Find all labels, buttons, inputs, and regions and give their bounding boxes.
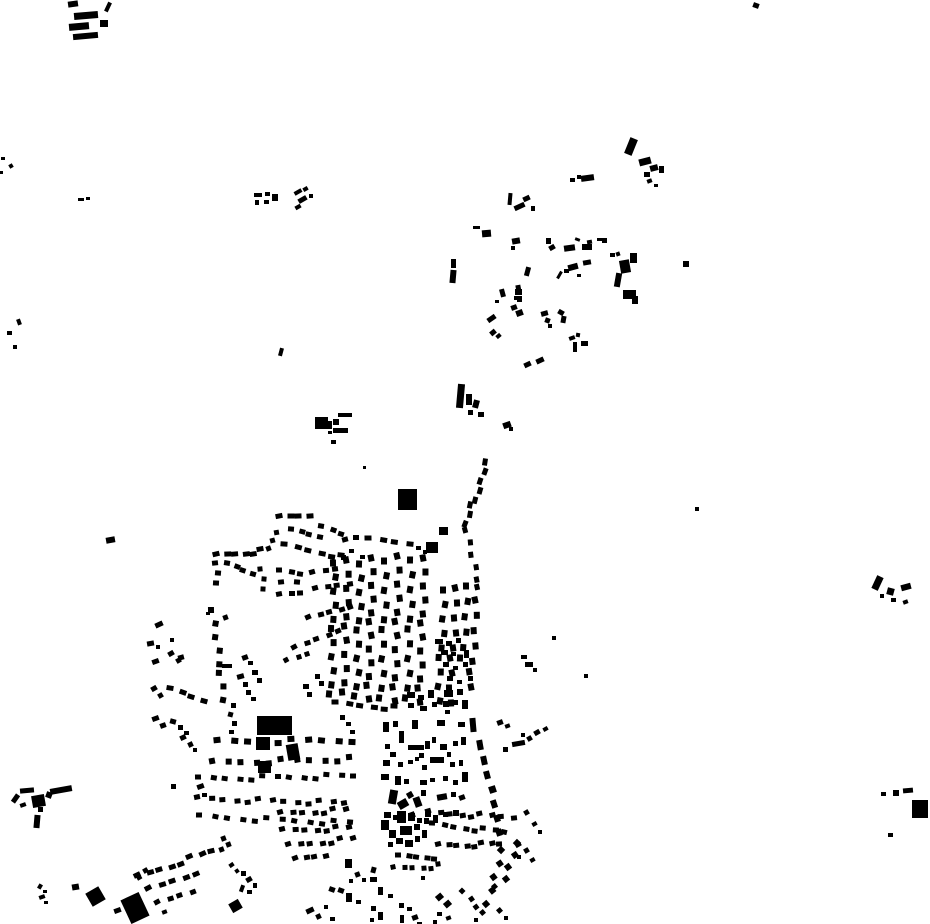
building-footprint bbox=[161, 909, 167, 914]
building-footprint bbox=[389, 683, 396, 691]
building-footprint bbox=[422, 596, 428, 603]
building-footprint bbox=[318, 737, 326, 744]
building-footprint bbox=[120, 892, 149, 924]
building-footprint bbox=[509, 427, 513, 431]
building-footprint bbox=[272, 194, 278, 201]
building-footprint bbox=[510, 304, 517, 311]
building-footprint bbox=[459, 813, 466, 819]
building-footprint bbox=[328, 840, 335, 846]
building-footprint bbox=[355, 669, 362, 677]
building-footprint bbox=[446, 654, 453, 662]
building-footprint bbox=[473, 226, 480, 229]
building-footprint bbox=[504, 916, 508, 920]
building-footprint bbox=[417, 698, 424, 706]
building-footprint bbox=[275, 740, 282, 746]
building-footprint bbox=[278, 579, 284, 585]
building-footprint bbox=[381, 641, 387, 648]
building-footprint bbox=[467, 511, 473, 519]
building-footprint bbox=[426, 542, 438, 553]
building-footprint bbox=[291, 855, 298, 862]
building-footprint bbox=[228, 899, 243, 913]
building-footprint bbox=[294, 756, 301, 763]
building-footprint bbox=[297, 571, 304, 577]
building-footprint bbox=[220, 835, 226, 841]
building-footprint bbox=[486, 314, 496, 323]
building-footprint bbox=[443, 899, 452, 908]
building-footprint bbox=[445, 915, 451, 920]
building-footprint bbox=[179, 734, 187, 741]
building-footprint bbox=[219, 696, 226, 703]
building-footprint bbox=[254, 193, 262, 197]
building-footprint bbox=[438, 668, 444, 675]
building-footprint bbox=[422, 569, 428, 576]
building-footprint bbox=[31, 794, 46, 808]
building-footprint bbox=[424, 855, 430, 861]
building-footprint bbox=[338, 606, 345, 613]
building-footprint bbox=[222, 614, 228, 620]
building-footprint bbox=[16, 318, 22, 325]
building-footprint bbox=[326, 690, 333, 697]
building-footprint bbox=[167, 650, 175, 657]
building-footprint bbox=[342, 806, 349, 812]
building-footprint bbox=[391, 539, 399, 545]
building-footprint bbox=[151, 715, 159, 722]
building-footprint bbox=[576, 333, 581, 338]
building-footprint bbox=[900, 583, 911, 591]
building-footprint bbox=[147, 640, 155, 646]
building-footprint bbox=[368, 582, 374, 589]
building-footprint bbox=[257, 716, 292, 735]
building-footprint bbox=[329, 806, 336, 812]
building-footprint bbox=[417, 647, 423, 654]
building-footprint bbox=[262, 739, 269, 745]
building-footprint bbox=[411, 914, 418, 921]
building-footprint bbox=[332, 566, 339, 572]
building-footprint bbox=[383, 760, 390, 766]
building-footprint bbox=[323, 828, 330, 834]
building-footprint bbox=[497, 846, 505, 854]
building-footprint bbox=[306, 841, 313, 847]
building-footprint bbox=[407, 615, 414, 623]
building-footprint bbox=[366, 673, 372, 680]
building-footprint bbox=[378, 684, 385, 692]
building-footprint bbox=[252, 818, 258, 824]
building-footprint bbox=[232, 721, 237, 726]
building-footprint bbox=[430, 757, 444, 763]
building-footprint bbox=[213, 737, 221, 744]
building-footprint bbox=[400, 915, 404, 923]
building-footprint bbox=[404, 779, 409, 784]
building-footprint bbox=[169, 718, 176, 724]
building-footprint bbox=[453, 629, 460, 637]
building-footprint bbox=[466, 668, 473, 676]
building-footprint bbox=[602, 238, 607, 243]
building-footprint bbox=[269, 537, 275, 543]
building-footprint bbox=[388, 894, 393, 898]
building-footprint bbox=[255, 200, 259, 205]
building-footprint bbox=[277, 756, 284, 763]
building-footprint bbox=[330, 527, 337, 534]
building-footprint bbox=[104, 2, 112, 13]
building-footprint bbox=[493, 827, 499, 832]
building-footprint bbox=[630, 253, 637, 263]
building-footprint bbox=[248, 661, 253, 665]
building-footprint bbox=[439, 615, 446, 623]
building-footprint bbox=[473, 564, 479, 571]
building-footprint bbox=[489, 840, 496, 846]
building-footprint bbox=[331, 639, 337, 646]
building-footprint bbox=[415, 757, 419, 761]
building-footprint bbox=[408, 745, 424, 750]
building-footprint bbox=[463, 628, 470, 636]
building-footprint bbox=[396, 566, 402, 573]
building-footprint bbox=[166, 685, 174, 691]
building-footprint bbox=[438, 644, 445, 651]
building-footprint bbox=[388, 789, 398, 804]
building-footprint bbox=[318, 523, 325, 529]
building-footprint bbox=[504, 723, 510, 728]
building-footprint bbox=[467, 501, 473, 509]
building-footprint bbox=[416, 546, 421, 550]
building-footprint bbox=[407, 556, 413, 563]
building-footprint bbox=[304, 640, 311, 647]
building-footprint bbox=[346, 701, 354, 707]
building-footprint bbox=[251, 697, 256, 701]
building-footprint bbox=[406, 791, 414, 799]
building-footprint bbox=[363, 681, 370, 689]
building-footprint bbox=[341, 536, 348, 542]
building-footprint bbox=[582, 244, 592, 250]
building-footprint bbox=[752, 2, 759, 9]
building-footprint bbox=[156, 645, 160, 649]
building-footprint bbox=[274, 530, 280, 536]
building-footprint bbox=[439, 527, 448, 535]
building-footprint bbox=[517, 296, 522, 302]
building-footprint bbox=[438, 810, 444, 816]
building-footprint bbox=[283, 657, 290, 664]
building-footprint bbox=[383, 722, 389, 732]
building-footprint bbox=[610, 253, 615, 257]
building-footprint bbox=[397, 798, 410, 810]
building-footprint bbox=[419, 633, 426, 641]
building-footprint bbox=[888, 833, 893, 837]
building-footprint bbox=[881, 792, 886, 796]
building-footprint bbox=[525, 662, 533, 667]
building-footprint bbox=[241, 871, 246, 876]
building-footprint bbox=[353, 535, 359, 540]
building-footprint bbox=[244, 799, 251, 805]
building-footprint bbox=[399, 731, 404, 743]
building-footprint bbox=[234, 798, 240, 804]
building-footprint bbox=[468, 539, 474, 545]
building-footprint bbox=[462, 700, 468, 709]
building-footprint bbox=[523, 809, 530, 816]
building-footprint bbox=[564, 269, 569, 273]
building-footprint bbox=[515, 289, 522, 295]
building-footprint bbox=[404, 684, 411, 692]
building-footprint bbox=[348, 739, 355, 745]
building-footprint bbox=[370, 595, 377, 602]
building-footprint bbox=[168, 877, 176, 884]
building-footprint bbox=[216, 647, 223, 654]
building-footprint bbox=[385, 744, 390, 749]
building-footprint bbox=[644, 172, 650, 177]
building-footprint bbox=[301, 827, 307, 833]
building-footprint bbox=[171, 784, 176, 789]
building-footprint bbox=[457, 689, 463, 695]
building-footprint bbox=[419, 753, 424, 758]
building-footprint bbox=[376, 694, 383, 702]
building-footprint bbox=[512, 740, 526, 747]
building-footprint bbox=[202, 793, 207, 797]
building-footprint bbox=[381, 820, 389, 830]
building-footprint bbox=[413, 854, 420, 860]
building-footprint bbox=[367, 554, 374, 562]
building-footprint bbox=[285, 774, 292, 780]
building-footprint bbox=[448, 699, 454, 706]
building-footprint bbox=[259, 773, 265, 778]
building-footprint bbox=[332, 573, 339, 581]
building-footprint bbox=[336, 738, 343, 744]
building-footprint bbox=[370, 568, 376, 575]
building-footprint bbox=[366, 695, 373, 703]
building-footprint bbox=[330, 818, 337, 824]
building-footprint bbox=[533, 729, 541, 736]
building-footprint bbox=[154, 621, 163, 629]
building-footprint bbox=[429, 820, 435, 825]
building-footprint bbox=[198, 850, 206, 857]
building-footprint bbox=[370, 918, 374, 922]
building-footprint bbox=[224, 815, 231, 821]
building-footprint bbox=[567, 263, 578, 271]
building-footprint bbox=[435, 861, 441, 867]
building-footprint bbox=[378, 626, 384, 633]
building-footprint bbox=[378, 887, 383, 895]
building-footprint bbox=[477, 477, 484, 485]
building-footprint bbox=[414, 684, 421, 691]
building-footprint bbox=[398, 489, 417, 510]
building-footprint bbox=[337, 531, 344, 538]
building-footprint bbox=[192, 870, 200, 877]
building-footprint bbox=[450, 644, 457, 652]
building-footprint bbox=[320, 840, 327, 846]
building-footprint bbox=[38, 807, 43, 812]
building-footprint bbox=[470, 627, 476, 634]
building-footprint bbox=[227, 711, 233, 717]
building-footprint bbox=[182, 874, 190, 881]
building-footprint bbox=[210, 775, 217, 781]
building-footprint bbox=[453, 741, 458, 746]
building-footprint bbox=[317, 534, 324, 540]
building-footprint bbox=[646, 178, 652, 183]
building-footprint bbox=[442, 822, 449, 828]
building-footprint bbox=[218, 846, 224, 852]
building-footprint bbox=[264, 200, 269, 204]
building-footprint bbox=[241, 654, 248, 661]
building-footprint bbox=[224, 551, 231, 556]
building-footprint bbox=[451, 584, 458, 592]
building-footprint bbox=[384, 812, 391, 818]
building-footprint bbox=[307, 692, 312, 697]
building-footprint bbox=[570, 178, 575, 182]
building-footprint bbox=[381, 616, 388, 623]
building-footprint bbox=[394, 608, 401, 616]
building-footprint bbox=[495, 300, 499, 303]
building-footprint bbox=[345, 859, 352, 868]
building-footprint bbox=[356, 560, 362, 567]
building-footprint bbox=[556, 271, 563, 279]
building-footprint bbox=[245, 876, 253, 883]
building-footprint bbox=[424, 818, 429, 824]
building-footprint bbox=[420, 780, 427, 785]
building-footprint bbox=[398, 762, 403, 767]
building-footprint bbox=[50, 785, 73, 795]
building-footprint bbox=[1, 157, 5, 160]
building-footprint bbox=[349, 879, 353, 883]
building-footprint bbox=[334, 628, 341, 635]
building-footprint bbox=[311, 585, 318, 591]
building-footprint bbox=[294, 188, 303, 195]
building-footprint bbox=[276, 591, 283, 597]
building-footprint bbox=[346, 824, 353, 830]
building-footprint bbox=[614, 273, 622, 288]
building-footprint bbox=[216, 670, 222, 676]
building-footprint bbox=[296, 654, 302, 660]
building-footprint bbox=[511, 815, 517, 821]
building-footprint bbox=[346, 754, 353, 761]
building-footprint bbox=[336, 835, 343, 841]
building-footprint bbox=[451, 259, 456, 268]
building-footprint bbox=[366, 646, 372, 653]
building-footprint bbox=[294, 513, 301, 518]
building-footprint bbox=[462, 772, 468, 782]
building-footprint bbox=[390, 864, 396, 870]
building-footprint bbox=[303, 684, 309, 689]
building-footprint bbox=[381, 558, 387, 565]
building-footprint bbox=[341, 622, 348, 630]
building-footprint bbox=[456, 638, 461, 643]
building-footprint bbox=[431, 856, 437, 861]
building-footprint bbox=[460, 644, 466, 651]
building-footprint bbox=[489, 329, 497, 337]
building-footprint bbox=[20, 787, 34, 793]
building-footprint bbox=[437, 720, 445, 726]
building-footprint bbox=[482, 230, 492, 238]
building-footprint bbox=[294, 544, 302, 551]
building-footprint bbox=[326, 632, 333, 639]
building-footprint bbox=[436, 697, 443, 705]
building-footprint bbox=[305, 801, 311, 806]
building-footprint bbox=[396, 838, 403, 844]
building-footprint bbox=[330, 587, 337, 595]
building-footprint bbox=[507, 193, 512, 205]
building-footprint bbox=[392, 646, 398, 653]
building-footprint bbox=[219, 797, 225, 802]
building-footprint bbox=[249, 551, 257, 557]
building-footprint bbox=[453, 843, 459, 849]
building-footprint bbox=[546, 238, 551, 244]
building-footprint bbox=[581, 341, 588, 346]
building-footprint bbox=[474, 918, 478, 922]
building-footprint bbox=[346, 599, 352, 606]
building-footprint bbox=[321, 810, 328, 816]
building-footprint bbox=[419, 610, 426, 618]
building-footprint bbox=[552, 636, 556, 640]
building-footprint bbox=[315, 674, 320, 679]
building-footprint bbox=[406, 853, 413, 859]
building-footprint bbox=[328, 653, 335, 661]
building-footprint bbox=[278, 348, 284, 357]
building-footprint bbox=[482, 458, 488, 466]
building-footprint bbox=[305, 531, 312, 537]
building-footprint bbox=[450, 762, 455, 767]
building-footprint bbox=[396, 594, 403, 602]
building-footprint bbox=[185, 853, 193, 860]
building-footprint bbox=[471, 844, 478, 850]
building-footprint bbox=[389, 830, 396, 838]
building-footprint bbox=[306, 757, 312, 763]
building-footprint bbox=[463, 826, 470, 832]
building-footprint bbox=[540, 310, 548, 317]
building-footprint bbox=[222, 664, 232, 668]
building-footprint bbox=[393, 552, 401, 560]
building-footprint bbox=[472, 642, 479, 649]
building-footprint bbox=[458, 887, 465, 894]
building-footprint bbox=[315, 913, 322, 920]
building-footprint bbox=[353, 626, 360, 633]
building-footprint bbox=[564, 244, 576, 251]
building-footprint bbox=[512, 237, 521, 244]
building-footprint bbox=[73, 32, 98, 40]
building-footprint bbox=[430, 778, 435, 782]
building-footprint bbox=[468, 814, 475, 820]
building-footprint bbox=[301, 775, 308, 781]
building-footprint bbox=[153, 898, 161, 905]
building-footprint bbox=[304, 854, 311, 860]
building-footprint bbox=[220, 683, 226, 689]
building-footprint bbox=[456, 384, 465, 409]
building-footprint bbox=[478, 412, 484, 417]
building-footprint bbox=[287, 736, 294, 742]
building-footprint bbox=[381, 706, 388, 711]
building-footprint bbox=[542, 726, 548, 732]
building-footprint bbox=[409, 865, 414, 870]
building-footprint bbox=[315, 828, 322, 834]
building-footprint bbox=[581, 174, 595, 182]
building-footprint bbox=[350, 730, 355, 734]
building-footprint bbox=[290, 643, 298, 650]
building-footprint bbox=[615, 251, 620, 256]
building-footprint bbox=[151, 658, 159, 665]
building-footprint bbox=[468, 552, 474, 559]
building-footprint bbox=[280, 799, 286, 804]
building-footprint bbox=[187, 693, 195, 700]
building-footprint bbox=[319, 681, 324, 686]
building-footprint bbox=[408, 760, 413, 764]
building-footprint bbox=[394, 660, 400, 667]
building-footprint bbox=[333, 582, 340, 588]
building-footprint bbox=[315, 798, 321, 804]
building-footprint bbox=[467, 683, 474, 691]
building-footprint bbox=[334, 758, 340, 764]
building-footprint bbox=[333, 428, 348, 433]
building-footprint bbox=[526, 735, 533, 742]
building-footprint bbox=[344, 665, 350, 672]
building-footprint bbox=[356, 900, 361, 904]
building-footprint bbox=[215, 570, 221, 576]
building-footprint bbox=[309, 194, 313, 198]
building-footprint bbox=[305, 736, 312, 743]
